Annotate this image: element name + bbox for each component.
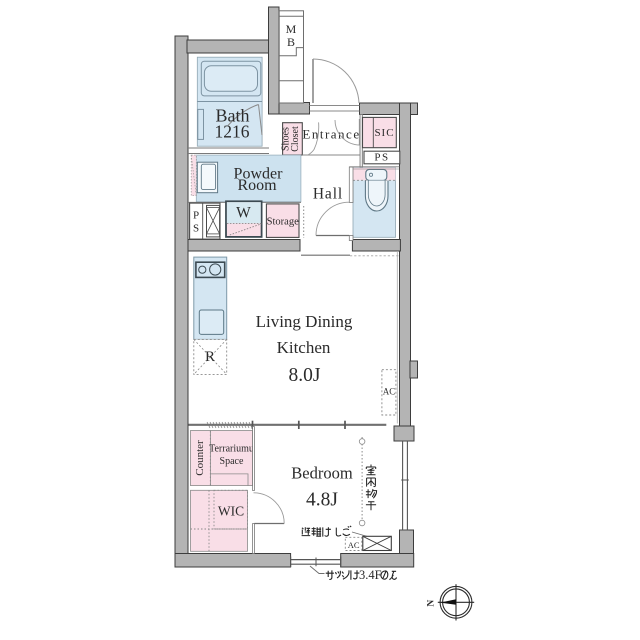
svg-text:Kitchen: Kitchen (277, 338, 331, 357)
svg-text:SIC: SIC (374, 127, 394, 139)
svg-text:1216: 1216 (215, 122, 250, 142)
svg-text:Entrance: Entrance (302, 127, 360, 142)
svg-text:Hall: Hall (313, 186, 343, 203)
svg-text:4.8J: 4.8J (306, 490, 338, 511)
svg-text:Space: Space (220, 456, 244, 467)
svg-text:3.4F: 3.4F (359, 568, 382, 582)
svg-text:Bedroom: Bedroom (291, 464, 353, 483)
svg-text:AC: AC (348, 540, 360, 550)
svg-text:Storage: Storage (267, 217, 299, 228)
svg-text:Living Dining: Living Dining (256, 312, 353, 331)
svg-text:Closet: Closet (290, 126, 301, 152)
svg-text:M: M (286, 22, 297, 36)
svg-text:AC: AC (383, 387, 396, 397)
svg-text:Counter: Counter (194, 440, 206, 476)
svg-text:PS: PS (374, 152, 389, 164)
svg-text:Room: Room (237, 177, 277, 194)
svg-text:P: P (193, 210, 199, 222)
svg-text:B: B (287, 35, 295, 49)
svg-text:R: R (205, 349, 215, 365)
svg-text:W: W (236, 205, 251, 222)
svg-text:S: S (193, 223, 199, 235)
svg-text:8.0J: 8.0J (289, 365, 321, 386)
svg-text:WIC: WIC (218, 504, 244, 519)
svg-text:Terrariumu: Terrariumu (209, 444, 254, 455)
svg-text:N: N (427, 600, 437, 607)
